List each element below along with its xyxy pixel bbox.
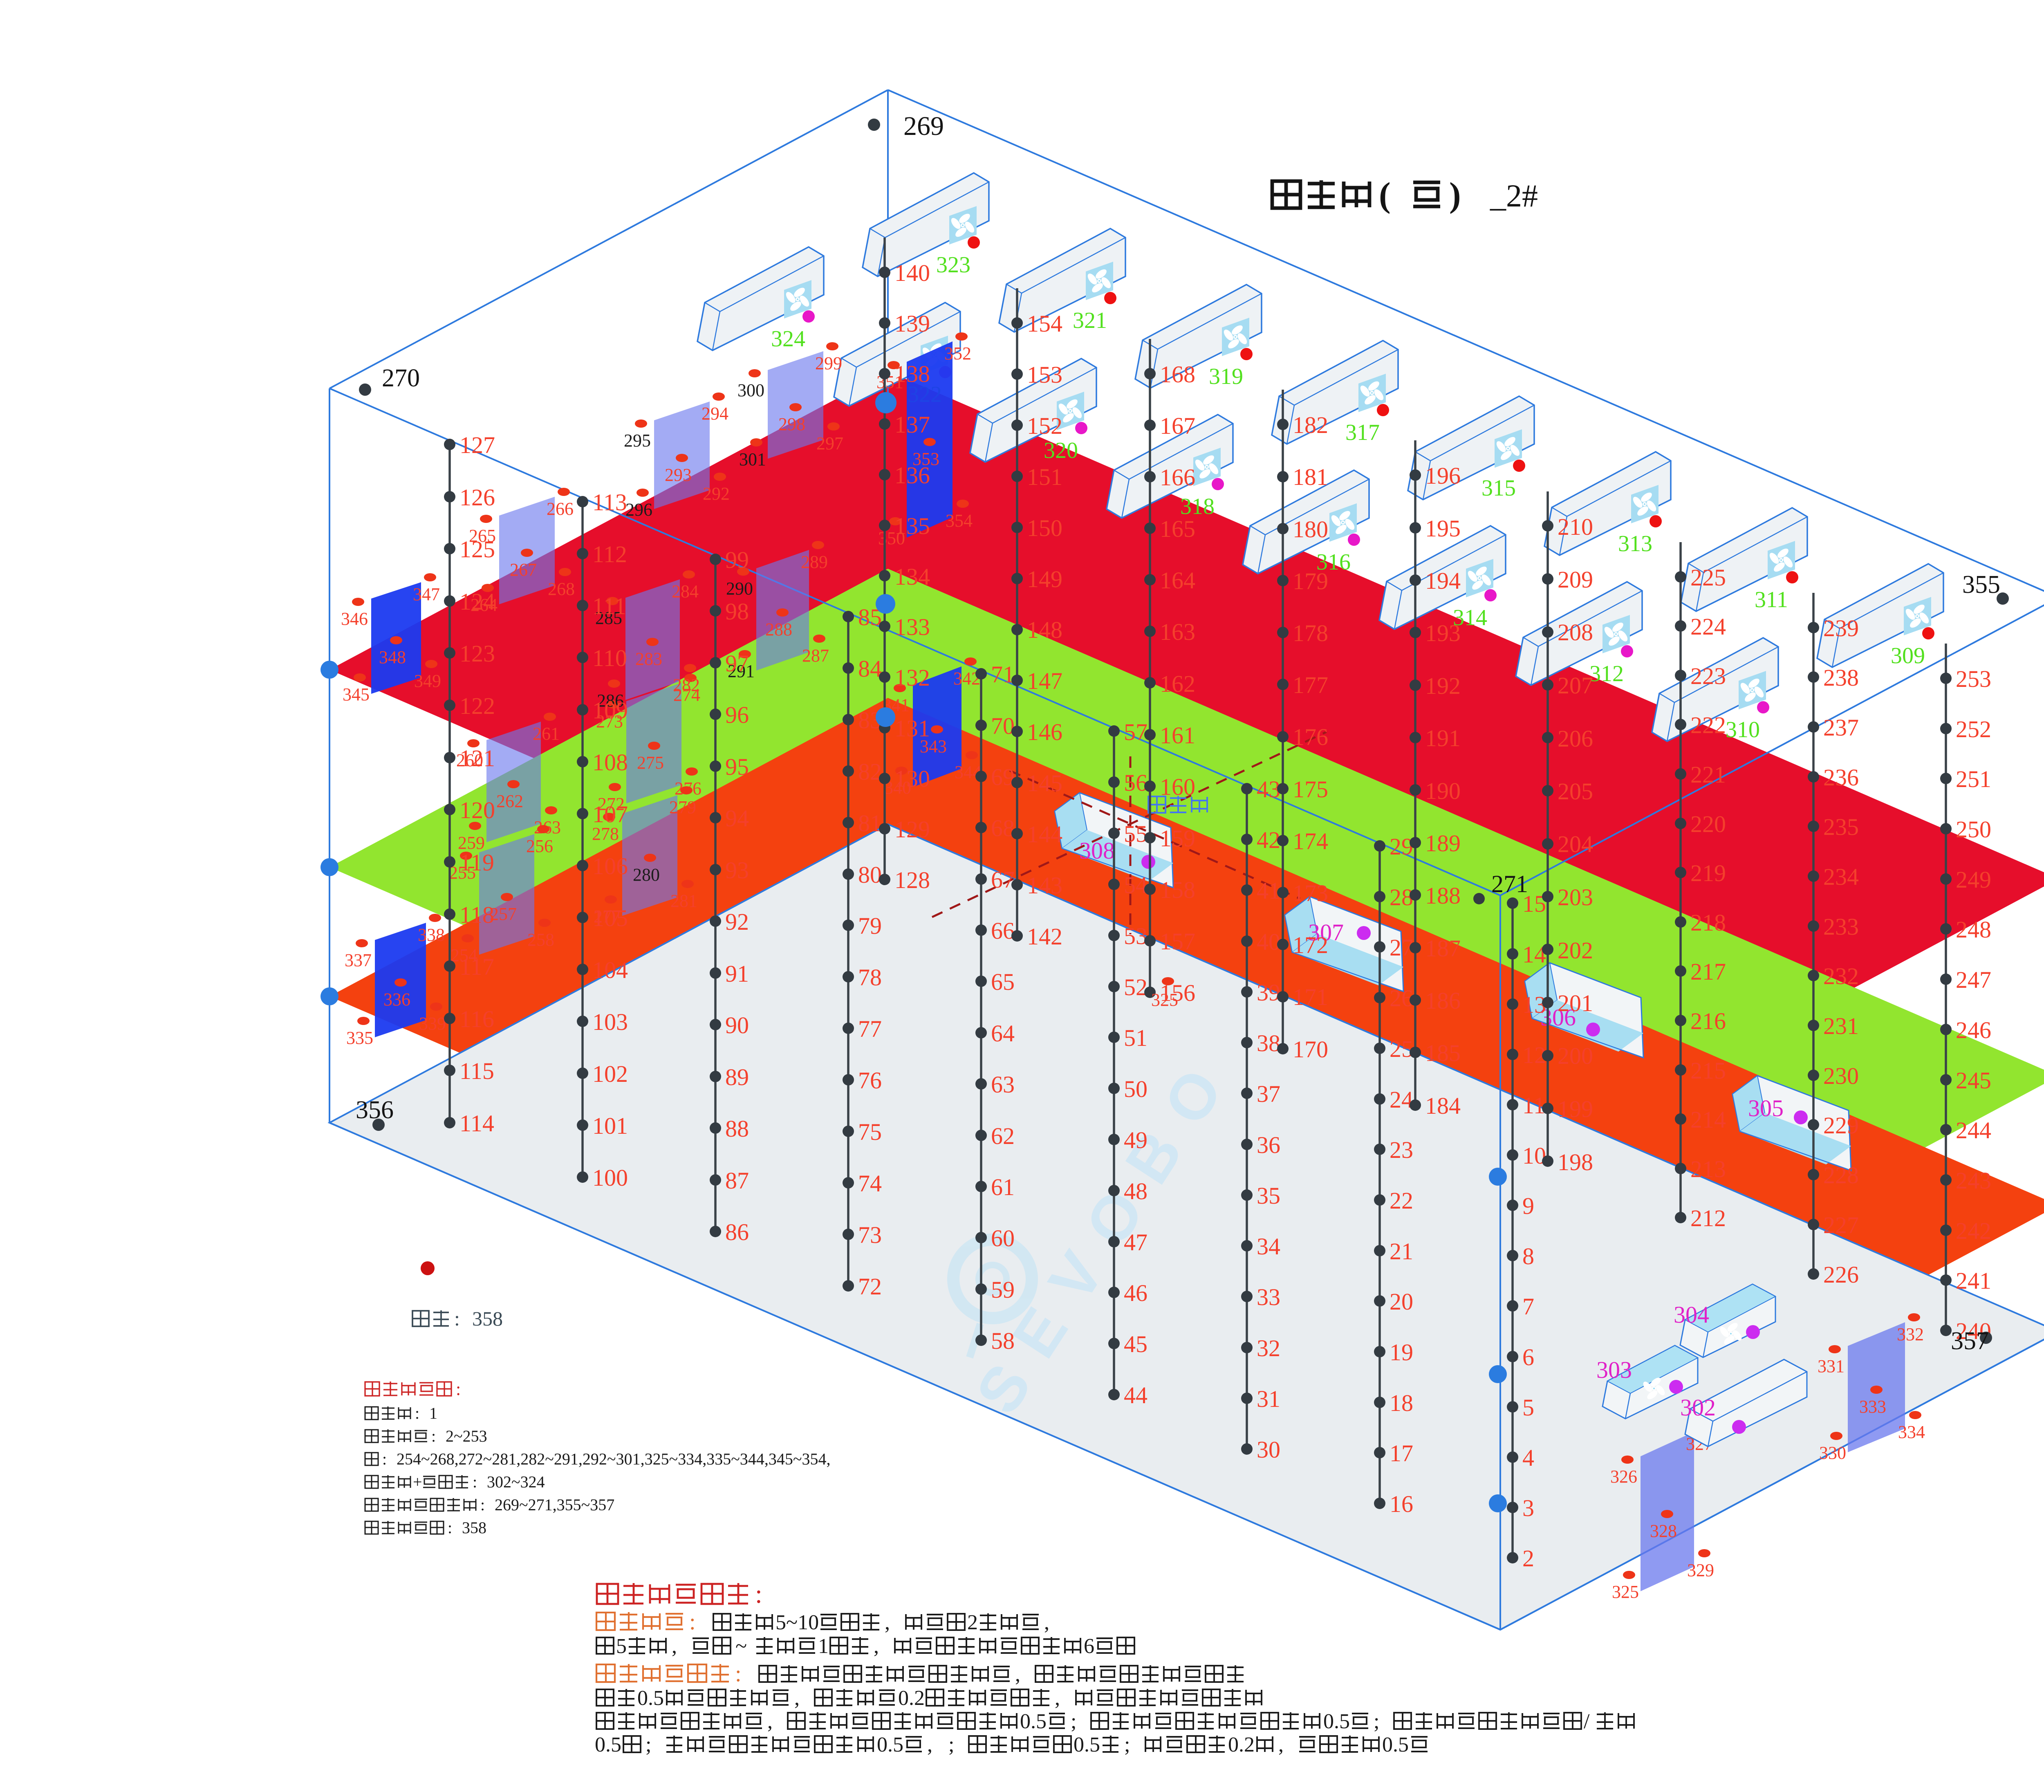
svg-text:112: 112 (592, 541, 627, 567)
svg-text:0.5: 0.5 (877, 1733, 903, 1756)
svg-text:212: 212 (1690, 1205, 1726, 1231)
svg-text:2~253: 2~253 (446, 1427, 487, 1445)
svg-text:60: 60 (991, 1225, 1015, 1251)
svg-text:312: 312 (1589, 661, 1624, 686)
svg-text:5: 5 (616, 1635, 627, 1658)
svg-text:31: 31 (1257, 1386, 1280, 1412)
svg-text:191: 191 (1425, 725, 1461, 751)
svg-text:117: 117 (459, 953, 494, 980)
svg-text:87: 87 (725, 1167, 749, 1194)
svg-text:103: 103 (592, 1009, 628, 1035)
svg-text:100: 100 (592, 1164, 628, 1191)
svg-text:,: , (767, 1710, 773, 1733)
svg-text:356: 356 (356, 1096, 394, 1124)
svg-text:137: 137 (894, 411, 930, 438)
svg-text:(: ( (1379, 175, 1391, 214)
svg-text:215: 215 (1690, 1057, 1726, 1084)
svg-text:138: 138 (894, 361, 930, 387)
svg-text:133: 133 (894, 614, 930, 640)
svg-text:75: 75 (858, 1119, 882, 1145)
svg-text:102: 102 (592, 1061, 628, 1087)
svg-text:160: 160 (1160, 774, 1195, 800)
svg-text:93: 93 (725, 857, 749, 884)
svg-text:218: 218 (1690, 909, 1726, 936)
svg-text:302~324: 302~324 (487, 1473, 545, 1491)
svg-text:51: 51 (1124, 1025, 1148, 1051)
svg-text:81: 81 (858, 810, 882, 837)
svg-text:58: 58 (991, 1328, 1015, 1354)
svg-text:165: 165 (1160, 516, 1195, 542)
svg-text:347: 347 (413, 584, 440, 604)
svg-text:175: 175 (1293, 776, 1328, 803)
svg-text:6: 6 (1522, 1344, 1534, 1370)
svg-text:168: 168 (1160, 361, 1195, 388)
svg-text:295: 295 (624, 431, 651, 451)
svg-text:79: 79 (858, 913, 882, 939)
svg-text:232: 232 (1823, 963, 1859, 989)
svg-text:206: 206 (1558, 725, 1593, 752)
svg-text:248: 248 (1956, 916, 1991, 943)
svg-text:9: 9 (1522, 1193, 1534, 1219)
svg-text:0.2: 0.2 (898, 1687, 925, 1710)
svg-text:74: 74 (858, 1170, 882, 1197)
svg-text:262: 262 (496, 791, 523, 811)
svg-text:49: 49 (1124, 1127, 1148, 1153)
svg-text:44: 44 (1124, 1382, 1148, 1408)
svg-text:124: 124 (459, 588, 495, 615)
svg-text:39: 39 (1257, 979, 1280, 1006)
svg-text:192: 192 (1425, 673, 1461, 699)
svg-text:294: 294 (702, 404, 728, 424)
svg-text:328: 328 (1650, 1521, 1677, 1541)
svg-text:59: 59 (991, 1276, 1015, 1303)
svg-text:152: 152 (1027, 413, 1062, 439)
svg-text:46: 46 (1124, 1280, 1148, 1306)
svg-text:147: 147 (1027, 668, 1062, 694)
svg-text:78: 78 (858, 964, 882, 991)
svg-text:54: 54 (1124, 872, 1148, 898)
svg-text:201: 201 (1558, 990, 1593, 1016)
svg-text:252: 252 (1956, 716, 1991, 742)
svg-text:0.5: 0.5 (595, 1733, 621, 1756)
svg-text:161: 161 (1160, 722, 1195, 749)
svg-text:108: 108 (592, 749, 628, 776)
svg-text:309: 309 (1891, 643, 1925, 668)
svg-text:125: 125 (459, 536, 495, 563)
svg-text:284: 284 (672, 581, 699, 601)
svg-text:148: 148 (1027, 617, 1062, 643)
svg-text:52: 52 (1124, 974, 1148, 1000)
svg-text::: : (735, 1661, 742, 1687)
svg-text:19: 19 (1390, 1339, 1413, 1366)
svg-text:358: 358 (462, 1518, 486, 1537)
svg-text:36: 36 (1257, 1132, 1280, 1158)
svg-text:114: 114 (459, 1110, 494, 1137)
svg-text:355: 355 (1962, 571, 2000, 599)
svg-text:35: 35 (1257, 1182, 1280, 1209)
svg-text:189: 189 (1425, 830, 1461, 857)
svg-text:41: 41 (1257, 877, 1280, 904)
svg-text:186: 186 (1425, 987, 1461, 1014)
svg-text:18: 18 (1390, 1390, 1413, 1416)
svg-text:69: 69 (991, 764, 1015, 790)
svg-text:251: 251 (1956, 766, 1991, 792)
svg-text:305: 305 (1748, 1095, 1784, 1121)
svg-text:302: 302 (1680, 1394, 1716, 1421)
svg-text::: : (456, 1379, 461, 1399)
svg-text:321: 321 (1073, 308, 1107, 333)
svg-text:61: 61 (991, 1174, 1015, 1200)
svg-text:2: 2 (1522, 1545, 1534, 1572)
svg-text:299: 299 (815, 353, 842, 373)
svg-text:122: 122 (459, 693, 495, 719)
svg-text:64: 64 (991, 1020, 1015, 1047)
svg-text:345: 345 (343, 684, 370, 704)
svg-text:236: 236 (1823, 764, 1859, 791)
svg-text:;: ; (948, 1733, 954, 1756)
svg-text:334: 334 (1898, 1422, 1925, 1442)
svg-text:332: 332 (1897, 1324, 1924, 1344)
svg-text:33: 33 (1257, 1284, 1280, 1310)
svg-text:228: 228 (1823, 1162, 1859, 1189)
svg-text:20: 20 (1390, 1288, 1413, 1315)
svg-text:121: 121 (459, 745, 495, 772)
svg-text:244: 244 (1956, 1117, 1991, 1144)
svg-text:48: 48 (1124, 1178, 1148, 1204)
svg-text:89: 89 (725, 1064, 749, 1090)
svg-text:239: 239 (1823, 615, 1859, 641)
svg-text:202: 202 (1558, 937, 1593, 964)
svg-text:,: , (885, 1611, 890, 1634)
svg-text:,: , (927, 1733, 932, 1756)
svg-text:269~271,355~357: 269~271,355~357 (495, 1496, 614, 1514)
svg-text:185: 185 (1425, 1040, 1461, 1066)
svg-text:174: 174 (1293, 828, 1328, 855)
svg-text:357: 357 (1951, 1327, 1989, 1355)
svg-text:331: 331 (1818, 1356, 1845, 1376)
svg-text:32: 32 (1257, 1335, 1280, 1361)
svg-text:2: 2 (967, 1611, 978, 1634)
svg-text:101: 101 (592, 1112, 628, 1139)
svg-text:~: ~ (735, 1635, 747, 1658)
svg-text:80: 80 (858, 861, 882, 888)
svg-text:38: 38 (1257, 1030, 1280, 1056)
svg-text:123: 123 (459, 640, 495, 667)
svg-text:88: 88 (725, 1115, 749, 1142)
svg-text:134: 134 (894, 563, 930, 590)
svg-text:94: 94 (725, 805, 749, 832)
svg-text:348: 348 (379, 647, 406, 667)
svg-text:_2#: _2# (1490, 178, 1538, 213)
svg-text:;: ; (1071, 1710, 1076, 1733)
svg-text:196: 196 (1425, 462, 1461, 489)
svg-text:172: 172 (1293, 932, 1328, 958)
svg-text:167: 167 (1160, 413, 1195, 439)
svg-text:6: 6 (1084, 1635, 1094, 1658)
svg-text:47: 47 (1124, 1229, 1148, 1256)
svg-text:326: 326 (1610, 1467, 1637, 1487)
svg-text:213: 213 (1690, 1156, 1726, 1182)
svg-text:163: 163 (1160, 619, 1195, 645)
svg-text:301: 301 (739, 449, 766, 469)
svg-text:159: 159 (1160, 825, 1195, 852)
svg-text:,: , (1015, 1663, 1020, 1686)
svg-text:249: 249 (1956, 866, 1991, 893)
svg-text:,: , (1055, 1687, 1060, 1710)
svg-text:;: ; (645, 1733, 651, 1756)
svg-text:333: 333 (1859, 1397, 1886, 1417)
svg-text:0.2: 0.2 (1228, 1733, 1255, 1756)
svg-text:65: 65 (991, 969, 1015, 995)
svg-text:,: , (794, 1687, 800, 1710)
svg-text:193: 193 (1425, 620, 1461, 646)
svg-text:131: 131 (894, 715, 930, 742)
svg-text:66: 66 (991, 917, 1015, 944)
svg-text:324: 324 (771, 326, 805, 352)
svg-text:199: 199 (1558, 1096, 1593, 1122)
svg-text:151: 151 (1027, 464, 1062, 490)
svg-text:84: 84 (858, 655, 882, 682)
svg-text:7: 7 (1522, 1293, 1534, 1320)
svg-text:40: 40 (1257, 929, 1280, 955)
svg-text:233: 233 (1823, 913, 1859, 940)
svg-text:282: 282 (673, 675, 700, 695)
svg-text:209: 209 (1558, 566, 1593, 593)
svg-text:283: 283 (635, 649, 662, 669)
svg-text:177: 177 (1293, 672, 1328, 698)
svg-text:171: 171 (1293, 984, 1328, 1010)
svg-text:129: 129 (894, 816, 930, 843)
svg-text:,: , (1278, 1733, 1284, 1756)
svg-text:275: 275 (637, 753, 664, 773)
svg-text:1: 1 (818, 1635, 829, 1658)
svg-text:73: 73 (858, 1222, 882, 1248)
svg-text:178: 178 (1293, 620, 1328, 646)
svg-text:110: 110 (592, 645, 627, 671)
svg-text:72: 72 (858, 1273, 882, 1300)
svg-text:335: 335 (346, 1028, 373, 1048)
svg-text:187: 187 (1425, 935, 1461, 962)
svg-text:271: 271 (1491, 870, 1528, 897)
svg-text:261: 261 (533, 724, 560, 744)
svg-text:92: 92 (725, 908, 749, 935)
svg-text:182: 182 (1293, 412, 1328, 438)
svg-text:3: 3 (1522, 1495, 1534, 1521)
svg-text:91: 91 (725, 960, 749, 987)
svg-text:223: 223 (1690, 663, 1726, 689)
svg-text:,: , (1044, 1611, 1049, 1634)
svg-text:216: 216 (1690, 1008, 1726, 1034)
svg-text:98: 98 (725, 598, 749, 625)
svg-text:/: / (1584, 1710, 1590, 1733)
svg-text:158: 158 (1160, 877, 1195, 903)
svg-text:315: 315 (1481, 475, 1516, 501)
svg-text:311: 311 (1755, 587, 1788, 612)
svg-text:300: 300 (737, 380, 764, 400)
svg-text:149: 149 (1027, 566, 1062, 592)
svg-text:247: 247 (1956, 967, 1991, 993)
svg-text:320: 320 (1044, 438, 1078, 463)
svg-text:241: 241 (1956, 1267, 1991, 1294)
svg-text:30: 30 (1257, 1436, 1280, 1463)
svg-text:56: 56 (1124, 769, 1148, 796)
svg-text:229: 229 (1823, 1112, 1859, 1139)
svg-text:293: 293 (665, 465, 692, 485)
svg-text:329: 329 (1687, 1560, 1714, 1580)
svg-text:203: 203 (1558, 884, 1593, 911)
svg-text:339: 339 (419, 1014, 446, 1034)
svg-text:176: 176 (1293, 724, 1328, 750)
svg-text:325: 325 (1151, 990, 1178, 1010)
svg-text:330: 330 (1819, 1443, 1846, 1463)
svg-text::: : (689, 1609, 696, 1635)
svg-text:0.5: 0.5 (1323, 1710, 1350, 1733)
svg-text:313: 313 (1618, 531, 1652, 556)
svg-text:296: 296 (625, 500, 652, 520)
svg-text:290: 290 (726, 579, 753, 599)
svg-text:256: 256 (526, 836, 553, 856)
svg-text:23: 23 (1390, 1137, 1413, 1163)
svg-text:235: 235 (1823, 814, 1859, 840)
svg-text:11: 11 (1522, 1092, 1545, 1119)
svg-text:42: 42 (1257, 827, 1280, 853)
svg-text:116: 116 (459, 1006, 494, 1032)
svg-text:225: 225 (1690, 564, 1726, 591)
svg-text::: : (454, 1307, 460, 1330)
svg-text:298: 298 (778, 414, 805, 434)
svg-text::: : (448, 1518, 452, 1537)
svg-text:166: 166 (1160, 464, 1195, 491)
svg-text:190: 190 (1425, 778, 1461, 804)
svg-text:224: 224 (1690, 613, 1726, 640)
svg-text:323: 323 (936, 252, 970, 278)
svg-text:50: 50 (1124, 1076, 1148, 1102)
svg-text:107: 107 (592, 801, 628, 828)
svg-text:243: 243 (1956, 1167, 1991, 1194)
svg-text:70: 70 (991, 713, 1015, 739)
svg-text:,: , (672, 1635, 677, 1658)
svg-text:173: 173 (1293, 880, 1328, 906)
svg-text:250: 250 (1956, 816, 1991, 843)
svg-text:118: 118 (459, 902, 494, 928)
svg-text:198: 198 (1558, 1149, 1593, 1175)
svg-text:5~10: 5~10 (775, 1611, 819, 1634)
svg-text:195: 195 (1425, 515, 1461, 542)
svg-text:45: 45 (1124, 1331, 1148, 1357)
svg-text:115: 115 (459, 1058, 494, 1084)
svg-text:95: 95 (725, 754, 749, 780)
svg-text:82: 82 (858, 758, 882, 785)
svg-text:0.5: 0.5 (637, 1687, 664, 1710)
svg-text:29: 29 (1390, 833, 1413, 860)
svg-text:292: 292 (703, 484, 730, 504)
svg-text:5: 5 (1522, 1394, 1534, 1421)
svg-text:136: 136 (894, 462, 930, 489)
svg-text::: : (755, 1579, 762, 1608)
svg-text:180: 180 (1293, 516, 1328, 543)
svg-text:43: 43 (1257, 776, 1280, 803)
svg-text:338: 338 (418, 925, 445, 945)
svg-text:346: 346 (341, 609, 368, 629)
svg-text:170: 170 (1293, 1036, 1328, 1063)
svg-text:126: 126 (459, 484, 495, 511)
svg-text:184: 184 (1425, 1092, 1461, 1119)
svg-text:99: 99 (725, 547, 749, 573)
svg-text:281: 281 (670, 891, 697, 911)
svg-text:145: 145 (1027, 770, 1062, 796)
svg-text:16: 16 (1390, 1491, 1413, 1517)
svg-text:0.5: 0.5 (1382, 1733, 1409, 1756)
svg-text:297: 297 (816, 433, 843, 453)
svg-text:227: 227 (1823, 1212, 1859, 1238)
svg-text:86: 86 (725, 1219, 749, 1245)
svg-text::: : (473, 1473, 477, 1491)
svg-text:222: 222 (1690, 712, 1726, 738)
svg-text:62: 62 (991, 1123, 1015, 1149)
svg-text:53: 53 (1124, 923, 1148, 949)
svg-text:21: 21 (1390, 1238, 1413, 1265)
svg-text:25: 25 (1390, 1036, 1413, 1062)
svg-text:204: 204 (1558, 831, 1593, 857)
svg-text::: : (415, 1404, 419, 1422)
svg-text:254~268,272~281,282~291,292~30: 254~268,272~281,282~291,292~301,325~334,… (397, 1450, 830, 1468)
svg-text:337: 337 (345, 950, 372, 970)
svg-text:214: 214 (1690, 1106, 1726, 1133)
svg-text:210: 210 (1558, 514, 1593, 540)
svg-text:105: 105 (592, 905, 628, 931)
svg-text:179: 179 (1293, 568, 1328, 594)
svg-text:146: 146 (1027, 719, 1062, 745)
svg-text:237: 237 (1823, 714, 1859, 741)
svg-text:287: 287 (802, 646, 829, 666)
svg-text:67: 67 (991, 866, 1015, 893)
svg-text:270: 270 (382, 364, 420, 392)
svg-text:4: 4 (1522, 1444, 1534, 1471)
svg-text:63: 63 (991, 1071, 1015, 1098)
svg-text:1: 1 (429, 1404, 437, 1422)
svg-text:57: 57 (1124, 719, 1148, 745)
svg-text:267: 267 (510, 560, 537, 580)
svg-text:;: ; (1374, 1710, 1379, 1733)
svg-text:358: 358 (472, 1307, 503, 1330)
svg-text:34: 34 (1257, 1233, 1280, 1260)
svg-text:111: 111 (592, 593, 626, 619)
svg-text:217: 217 (1690, 958, 1726, 985)
svg-text:208: 208 (1558, 619, 1593, 646)
svg-text:+: + (413, 1473, 422, 1491)
svg-text:132: 132 (894, 664, 930, 691)
svg-text:77: 77 (858, 1016, 882, 1042)
svg-text::: : (382, 1450, 387, 1468)
svg-text:205: 205 (1558, 778, 1593, 805)
svg-text:220: 220 (1690, 811, 1726, 837)
svg-text:26: 26 (1390, 985, 1413, 1012)
svg-text::: : (480, 1496, 485, 1514)
svg-text:0.5: 0.5 (1020, 1710, 1047, 1733)
svg-text:71: 71 (991, 661, 1015, 688)
svg-text:119: 119 (459, 849, 494, 876)
svg-text:280: 280 (633, 865, 660, 885)
svg-text:226: 226 (1823, 1261, 1859, 1288)
svg-text:;: ; (1124, 1733, 1130, 1756)
svg-text:140: 140 (894, 260, 930, 286)
svg-text:130: 130 (894, 765, 930, 792)
svg-text:288: 288 (765, 619, 792, 639)
svg-text:230: 230 (1823, 1063, 1859, 1089)
svg-text:90: 90 (725, 1012, 749, 1038)
svg-text:154: 154 (1027, 310, 1062, 337)
svg-text:188: 188 (1425, 882, 1461, 909)
